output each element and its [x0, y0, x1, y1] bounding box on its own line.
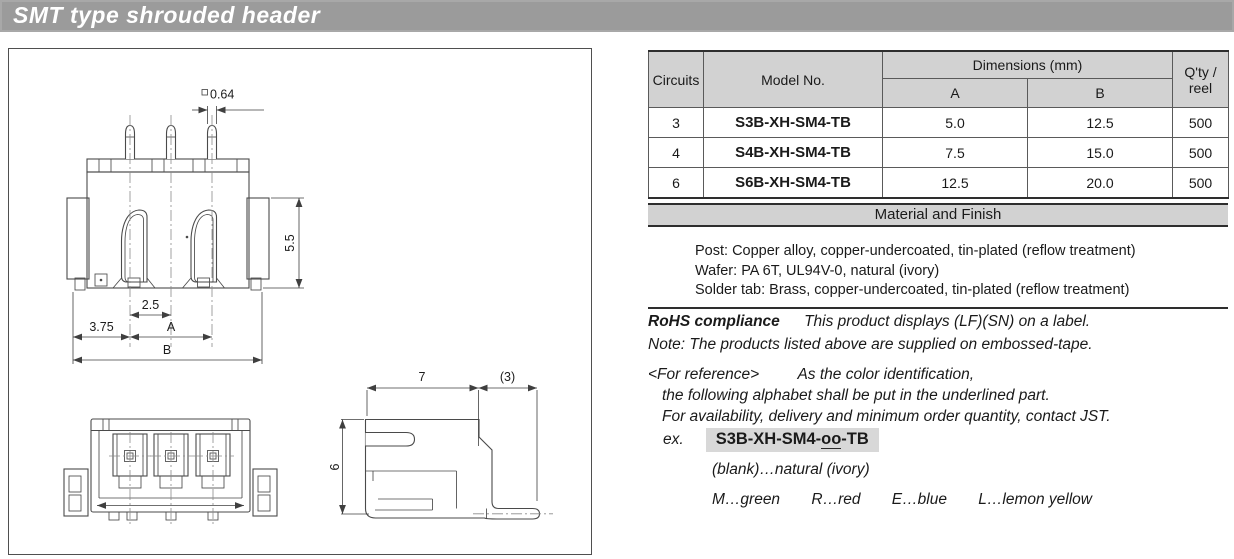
table-row: 6 S6B-XH-SM4-TB 12.5 20.0 500: [649, 168, 1229, 199]
dim-label-a: A: [167, 320, 176, 334]
table-row: 3 S3B-XH-SM4-TB 5.0 12.5 500: [649, 108, 1229, 138]
material-finish-text: Post: Copper alloy, copper-undercoated, …: [695, 242, 1136, 301]
col-header-a: A: [883, 79, 1028, 108]
dim-pitch-group: 2.5 3.75 A B: [73, 292, 262, 364]
example-colors-line: M…green R…red E…blue L…lemon yellow: [648, 487, 1234, 512]
dim-label-pin: 0.64: [210, 88, 234, 102]
example-section: ex.S3B-XH-SM4-oo-TB (blank)…natural (ivo…: [648, 428, 1234, 512]
dim-label-side-width: 7: [419, 370, 426, 384]
technical-drawing-panel: 0.64 5.5 2.5 3.75 A B: [8, 48, 592, 555]
dim-pin-width: 0.64: [192, 88, 264, 125]
bottom-view: [64, 419, 277, 525]
col-header-qty: Q'ty / reel: [1173, 51, 1229, 108]
rohs-section: RoHS compliance This product displays (L…: [648, 311, 1234, 356]
section-divider: [648, 307, 1228, 309]
col-header-dimensions: Dimensions (mm): [883, 51, 1173, 79]
rohs-note: Note: The products listed above are supp…: [648, 334, 1234, 357]
page-title: SMT type shrouded header: [0, 0, 1234, 29]
material-line-post: Post: Copper alloy, copper-undercoated, …: [695, 242, 1136, 262]
color-option-blue: E…blue: [892, 491, 947, 508]
reference-line3: For availability, delivery and minimum o…: [648, 406, 1234, 427]
connector-drawing: 0.64 5.5 2.5 3.75 A B: [9, 49, 588, 551]
example-blank-line: (blank)…natural (ivory): [648, 457, 1234, 482]
color-option-green: M…green: [712, 491, 780, 508]
example-label: ex.: [648, 431, 684, 448]
reference-section: <For reference> As the color identificat…: [648, 364, 1234, 427]
dim-label-pitch: 2.5: [142, 298, 159, 312]
col-header-b: B: [1028, 79, 1173, 108]
table-row: 4 S4B-XH-SM4-TB 7.5 15.0 500: [649, 138, 1229, 168]
dim-label-offset: 3.75: [89, 320, 113, 334]
example-model-number: S3B-XH-SM4-oo-TB: [706, 428, 879, 452]
spec-table: Circuits Model No. Dimensions (mm) Q'ty …: [648, 50, 1229, 199]
reference-line1: As the color identification,: [797, 366, 974, 383]
color-code-placeholder: oo: [821, 430, 841, 449]
col-header-circuits: Circuits: [649, 51, 704, 108]
reference-line2: the following alphabet shall be put in t…: [648, 385, 1234, 406]
dim-label-side-height: 6: [328, 463, 342, 470]
front-view: 0.64 5.5 2.5 3.75 A B: [67, 88, 304, 365]
dim-label-height: 5.5: [283, 234, 297, 251]
dim-label-side-tab: (3): [500, 370, 515, 384]
rohs-text: This product displays (LF)(SN) on a labe…: [804, 313, 1090, 330]
color-option-lemon-yellow: L…lemon yellow: [978, 491, 1092, 508]
reference-tag: <For reference>: [648, 366, 759, 383]
material-line-wafer: Wafer: PA 6T, UL94V-0, natural (ivory): [695, 262, 1136, 282]
color-option-red: R…red: [811, 491, 860, 508]
col-header-model: Model No.: [704, 51, 883, 108]
side-view: 7 (3) 6: [328, 370, 553, 519]
page-title-bar: SMT type shrouded header: [0, 0, 1234, 32]
rohs-label: RoHS compliance: [648, 313, 780, 330]
material-line-solder-tab: Solder tab: Brass, copper-undercoated, t…: [695, 281, 1136, 301]
dim-label-b: B: [163, 343, 171, 357]
material-finish-header: Material and Finish: [648, 203, 1228, 227]
